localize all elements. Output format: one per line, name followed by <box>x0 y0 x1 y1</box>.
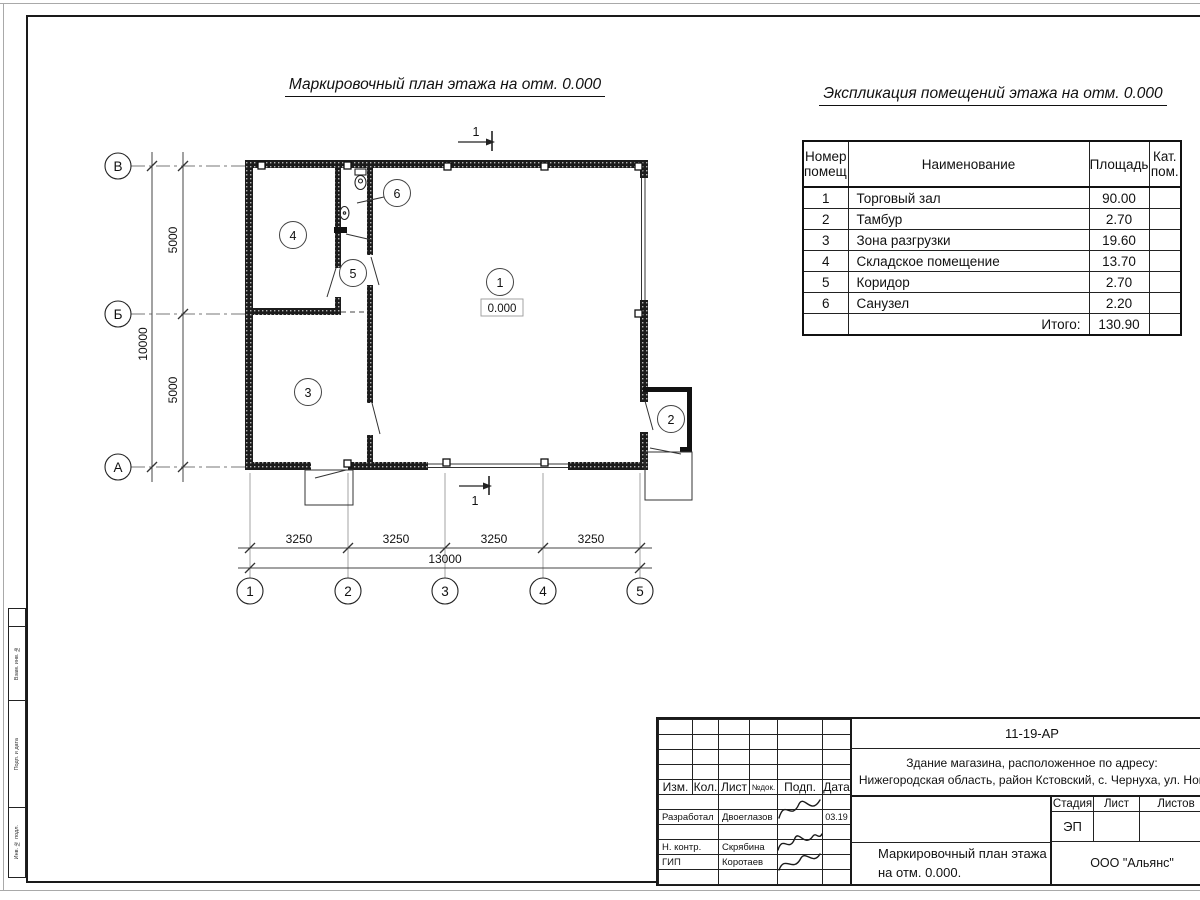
sheet-edge-top <box>0 3 1200 4</box>
h-dim-label: 3250 <box>286 532 313 546</box>
col-name: Наименование <box>848 141 1089 187</box>
drawing-title-cell: Маркировочный план этажа на отм. 0.000. <box>850 842 1052 884</box>
total-label: Итого: <box>848 314 1089 336</box>
signature-gip <box>779 854 820 870</box>
room-mark: 3 <box>305 386 312 400</box>
toilet-icon <box>355 169 366 190</box>
svg-text:1: 1 <box>473 125 480 139</box>
explication-title: Экспликация помещений этажа на отм. 0.00… <box>798 85 1188 106</box>
h-dim-total-label: 13000 <box>428 552 462 566</box>
margin-label: Инв. № подл. <box>14 825 20 859</box>
section-mark-top: 1 <box>458 125 495 151</box>
sheets-value <box>1140 812 1200 842</box>
axis-label: В <box>113 159 122 174</box>
axis-label: 2 <box>344 584 352 599</box>
sheet-edge-left <box>3 3 4 891</box>
dim-ticks <box>147 161 188 472</box>
margin-label: Взам. инв. № <box>14 646 20 680</box>
elevation-mark: 0.000 <box>481 299 523 316</box>
sheet-header: Лист <box>1094 797 1140 812</box>
sink-icon <box>340 207 349 220</box>
h-dim-label: 3250 <box>481 532 508 546</box>
axis-label: 1 <box>246 584 254 599</box>
axis-label: А <box>113 460 122 475</box>
stage-header: Стадия <box>1052 797 1094 812</box>
sheet-value <box>1094 812 1140 842</box>
title-block: Изм. Кол. Лист №док. Подп. Дата Разработ… <box>656 717 1200 886</box>
total-value: 130.90 <box>1089 314 1149 336</box>
svg-text:1: 1 <box>472 494 479 508</box>
v-dim-label: 5000 <box>166 226 180 253</box>
floor-plan: 5000 5000 10000 В Б А <box>80 100 730 620</box>
signatures <box>775 790 825 880</box>
explication-table: Номерпомещ. Наименование Площадь Кат.пом… <box>802 140 1182 336</box>
table-row: 6Санузел2.20 <box>803 293 1181 314</box>
h-dim-label: 3250 <box>578 532 605 546</box>
walls <box>245 160 648 470</box>
table-total-row: Итого:130.90 <box>803 314 1181 336</box>
signature-developer <box>779 800 820 818</box>
windows <box>428 178 645 468</box>
col-category: Кат.пом. <box>1149 141 1181 187</box>
margin-box-inv: Инв. № подл. <box>8 807 26 878</box>
table-row: 5Коридор2.70 <box>803 272 1181 293</box>
sheet-edge-bottom <box>0 890 1200 891</box>
room-mark: 4 <box>290 229 297 243</box>
col-axis-circles: 1 2 3 4 5 <box>237 578 653 604</box>
table-row: 3Зона разгрузки19.60 <box>803 230 1181 251</box>
table-row: 4Складское помещение13.70 <box>803 251 1181 272</box>
table-row: 1Торговый зал90.00 <box>803 187 1181 209</box>
room-mark: 2 <box>668 413 675 427</box>
v-dimension-lines <box>152 152 183 482</box>
table-header-row: Номерпомещ. Наименование Площадь Кат.пом… <box>803 141 1181 187</box>
porch-right <box>645 452 692 500</box>
margin-box-empty <box>8 608 26 627</box>
col-area: Площадь <box>1089 141 1149 187</box>
svg-text:0.000: 0.000 <box>488 303 517 315</box>
margin-box-vzam: Взам. инв. № <box>8 626 26 701</box>
signature-ncontrol <box>778 834 822 850</box>
axis-label: Б <box>114 307 123 322</box>
axis-label: 4 <box>539 584 547 599</box>
object-name-cell: Здание магазина, расположенное по адресу… <box>850 749 1200 797</box>
col-number: Номерпомещ. <box>803 141 848 187</box>
axis-label: 3 <box>441 584 449 599</box>
plan-title: Маркировочный план этажа на отм. 0.000 <box>250 76 640 97</box>
frame-left <box>26 15 28 883</box>
axis-lines-rows <box>131 166 248 467</box>
porch-bottom <box>305 470 353 505</box>
margin-label: Подп. и дата <box>14 738 20 770</box>
title-upper-cell <box>850 797 1052 842</box>
stage-value: ЭП <box>1052 812 1094 842</box>
room-mark: 1 <box>497 276 504 290</box>
doc-code-cell: 11-19-АР <box>850 719 1200 749</box>
room-mark: 5 <box>350 267 357 281</box>
axis-label: 5 <box>636 584 644 599</box>
company-cell: ООО "Альянс" <box>1052 842 1200 884</box>
frame-top <box>26 15 1200 17</box>
sheets-header: Листов <box>1140 797 1200 812</box>
section-mark-bottom: 1 <box>459 476 492 508</box>
drawing-sheet: Взам. инв. № Подп. и дата Инв. № подл. М… <box>0 0 1200 900</box>
room-mark: 6 <box>394 187 401 201</box>
row-axis-circles: В Б А <box>105 153 131 480</box>
v-dim-label: 5000 <box>166 376 180 403</box>
margin-box-podp: Подп. и дата <box>8 700 26 808</box>
v-dim-total-label: 10000 <box>136 327 150 361</box>
sink-counter <box>334 227 347 233</box>
h-dim-label: 3250 <box>383 532 410 546</box>
table-row: 2Тамбур2.70 <box>803 209 1181 230</box>
